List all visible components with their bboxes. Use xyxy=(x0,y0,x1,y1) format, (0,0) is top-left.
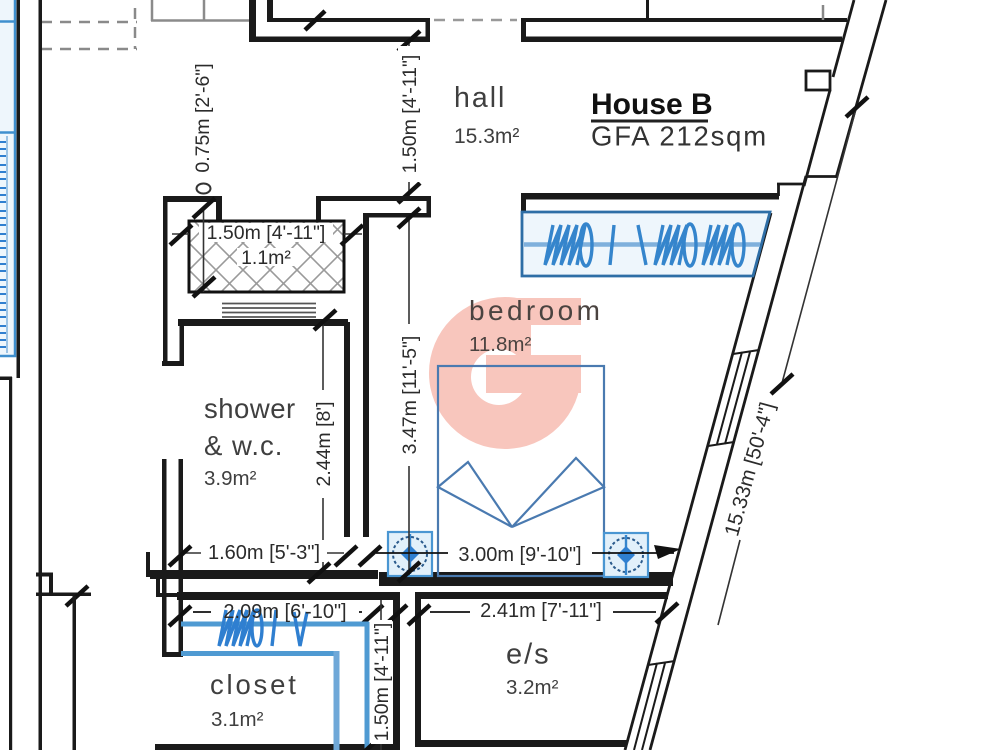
svg-text:3.9m²: 3.9m² xyxy=(204,467,257,490)
svg-text:2.09m [6'-10"]: 2.09m [6'-10"] xyxy=(223,601,346,623)
svg-text:2.41m [7'-11"]: 2.41m [7'-11"] xyxy=(480,600,602,622)
svg-text:3.2m²: 3.2m² xyxy=(506,676,559,699)
svg-text:3.47m [11'-5"]: 3.47m [11'-5"] xyxy=(399,336,421,455)
svg-text:GFA 212sqm: GFA 212sqm xyxy=(591,121,768,152)
svg-text:2.44m [8']: 2.44m [8'] xyxy=(313,401,335,486)
svg-text:15.3m²: 15.3m² xyxy=(454,125,519,148)
svg-text:11.8m²: 11.8m² xyxy=(469,333,531,356)
svg-text:3.1m²: 3.1m² xyxy=(211,708,264,731)
svg-text:1.50m [4'-11"]: 1.50m [4'-11"] xyxy=(371,623,393,742)
svg-text:3.00m [9'-10"]: 3.00m [9'-10"] xyxy=(458,544,581,566)
svg-text:1.50m [4'-11"]: 1.50m [4'-11"] xyxy=(207,222,326,244)
svg-text:bedroom: bedroom xyxy=(469,295,603,326)
svg-text:shower: shower xyxy=(204,393,296,424)
svg-text:e/s: e/s xyxy=(506,639,551,671)
svg-text:& w.c.: & w.c. xyxy=(204,430,283,461)
svg-text:1.1m²: 1.1m² xyxy=(241,247,291,269)
svg-text:hall: hall xyxy=(454,82,506,114)
svg-text:0.75m [2'-6"]: 0.75m [2'-6"] xyxy=(192,63,214,172)
svg-text:1.50m [4'-11"]: 1.50m [4'-11"] xyxy=(399,55,421,174)
svg-text:House B: House B xyxy=(591,88,713,121)
svg-text:closet: closet xyxy=(210,669,299,700)
svg-text:1.60m [5'-3"]: 1.60m [5'-3"] xyxy=(208,542,320,564)
